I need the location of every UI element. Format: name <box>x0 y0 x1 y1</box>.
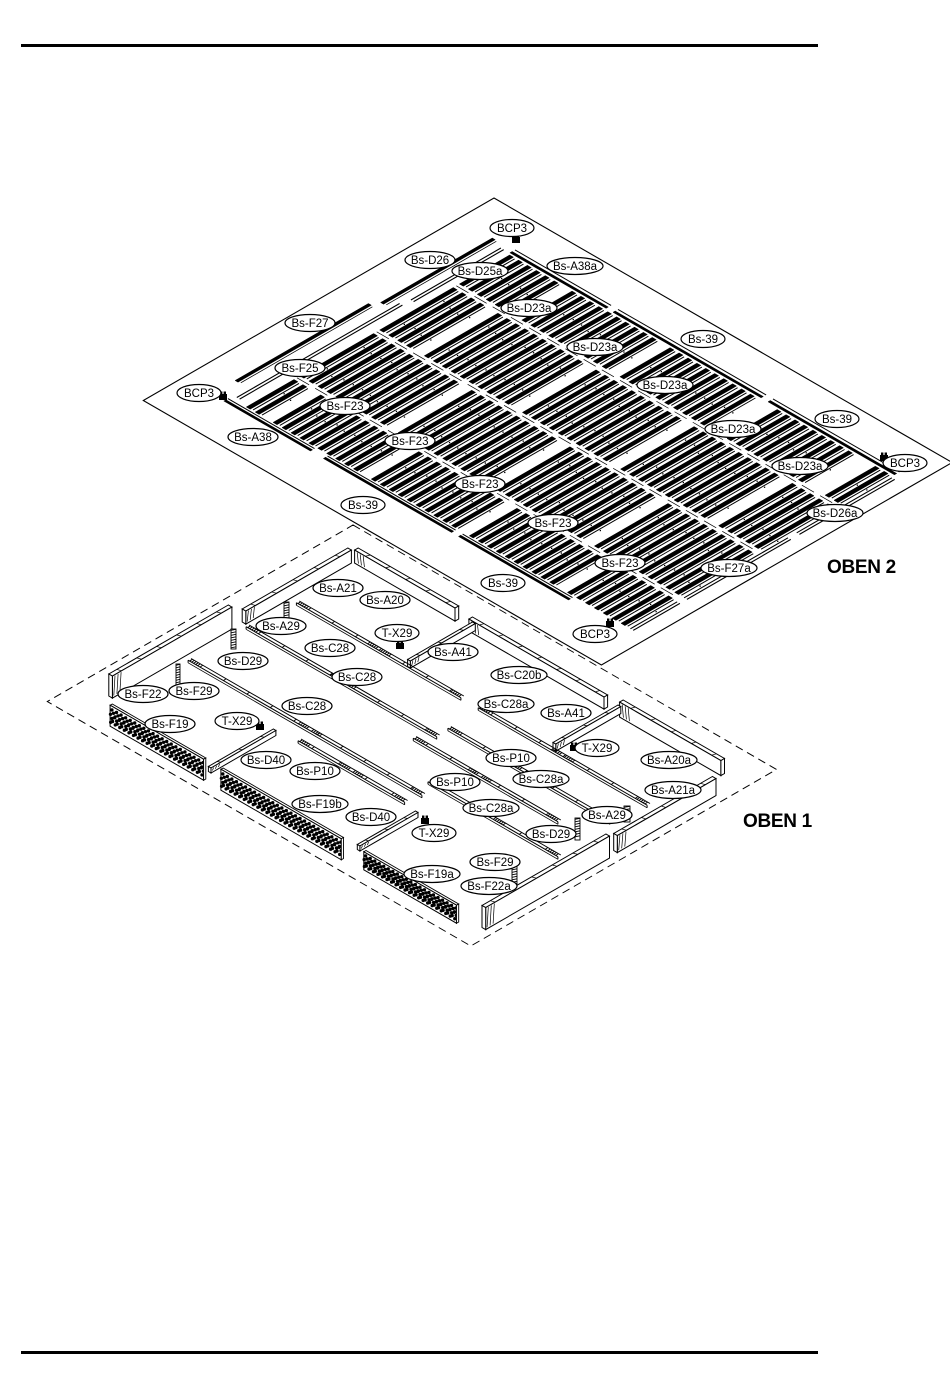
svg-text:Bs-A41: Bs-A41 <box>547 708 585 720</box>
svg-text:BCP3: BCP3 <box>890 458 920 470</box>
svg-text:BCP3: BCP3 <box>580 629 610 641</box>
svg-text:Bs-D26: Bs-D26 <box>411 255 449 267</box>
svg-text:Bs-D29: Bs-D29 <box>224 656 262 668</box>
svg-text:Bs-A29: Bs-A29 <box>588 810 626 822</box>
svg-text:Bs-A41: Bs-A41 <box>434 647 472 659</box>
svg-text:Bs-39: Bs-39 <box>688 334 718 346</box>
svg-text:Bs-C28a: Bs-C28a <box>484 699 529 711</box>
svg-text:Bs-F22: Bs-F22 <box>124 689 161 701</box>
svg-text:Bs-C28: Bs-C28 <box>311 643 349 655</box>
svg-text:Bs-C28a: Bs-C28a <box>469 803 514 815</box>
svg-text:Bs-A38: Bs-A38 <box>234 432 272 444</box>
svg-text:Bs-F29: Bs-F29 <box>476 857 513 869</box>
svg-text:Bs-F29: Bs-F29 <box>175 686 212 698</box>
svg-text:T-X29: T-X29 <box>382 628 413 640</box>
svg-text:Bs-F19b: Bs-F19b <box>298 799 341 811</box>
svg-text:Bs-F23: Bs-F23 <box>391 436 428 448</box>
svg-text:Bs-C28: Bs-C28 <box>288 701 326 713</box>
svg-text:Bs-A21: Bs-A21 <box>319 583 357 595</box>
svg-text:Bs-P10: Bs-P10 <box>492 753 530 765</box>
svg-text:Bs-D40: Bs-D40 <box>247 755 285 767</box>
svg-text:T-X29: T-X29 <box>222 716 253 728</box>
svg-text:Bs-D23a: Bs-D23a <box>643 380 688 392</box>
svg-text:T-X29: T-X29 <box>582 743 613 755</box>
svg-text:Bs-C28: Bs-C28 <box>338 672 376 684</box>
svg-text:Bs-A38a: Bs-A38a <box>553 261 598 273</box>
svg-text:Bs-P10: Bs-P10 <box>296 766 334 778</box>
svg-text:Bs-D23a: Bs-D23a <box>573 342 618 354</box>
svg-text:BCP3: BCP3 <box>184 388 214 400</box>
svg-text:Bs-39: Bs-39 <box>488 578 518 590</box>
svg-text:Bs-D23a: Bs-D23a <box>507 303 552 315</box>
svg-text:OBEN 2: OBEN 2 <box>827 557 896 578</box>
svg-text:OBEN 1: OBEN 1 <box>743 811 813 832</box>
svg-text:Bs-D40: Bs-D40 <box>352 812 390 824</box>
svg-text:Bs-F19a: Bs-F19a <box>410 869 454 881</box>
svg-text:Bs-D23a: Bs-D23a <box>778 461 823 473</box>
svg-text:Bs-C28a: Bs-C28a <box>519 774 564 786</box>
svg-text:T-X29: T-X29 <box>419 828 450 840</box>
svg-text:Bs-A29: Bs-A29 <box>262 621 300 633</box>
svg-text:Bs-A21a: Bs-A21a <box>651 785 696 797</box>
svg-text:Bs-39: Bs-39 <box>822 414 852 426</box>
svg-text:Bs-F23: Bs-F23 <box>326 401 363 413</box>
svg-text:Bs-39: Bs-39 <box>348 500 378 512</box>
svg-text:Bs-A20: Bs-A20 <box>366 595 404 607</box>
svg-text:Bs-F22a: Bs-F22a <box>467 881 511 893</box>
svg-text:BCP3: BCP3 <box>497 223 527 235</box>
svg-text:Bs-F19: Bs-F19 <box>151 719 188 731</box>
svg-text:Bs-F23: Bs-F23 <box>601 558 638 570</box>
svg-text:Bs-F27: Bs-F27 <box>291 318 328 330</box>
svg-text:Bs-D25a: Bs-D25a <box>458 266 503 278</box>
svg-text:Bs-F25: Bs-F25 <box>281 363 318 375</box>
svg-text:Bs-C20b: Bs-C20b <box>497 670 542 682</box>
svg-text:Bs-F27a: Bs-F27a <box>707 563 751 575</box>
svg-text:Bs-F23: Bs-F23 <box>534 518 571 530</box>
svg-text:Bs-F23: Bs-F23 <box>461 479 498 491</box>
svg-text:Bs-A20a: Bs-A20a <box>647 755 692 767</box>
svg-text:Bs-D29: Bs-D29 <box>532 829 570 841</box>
svg-text:Bs-D23a: Bs-D23a <box>711 424 756 436</box>
svg-text:Bs-P10: Bs-P10 <box>436 777 474 789</box>
svg-text:Bs-D26a: Bs-D26a <box>813 508 858 520</box>
